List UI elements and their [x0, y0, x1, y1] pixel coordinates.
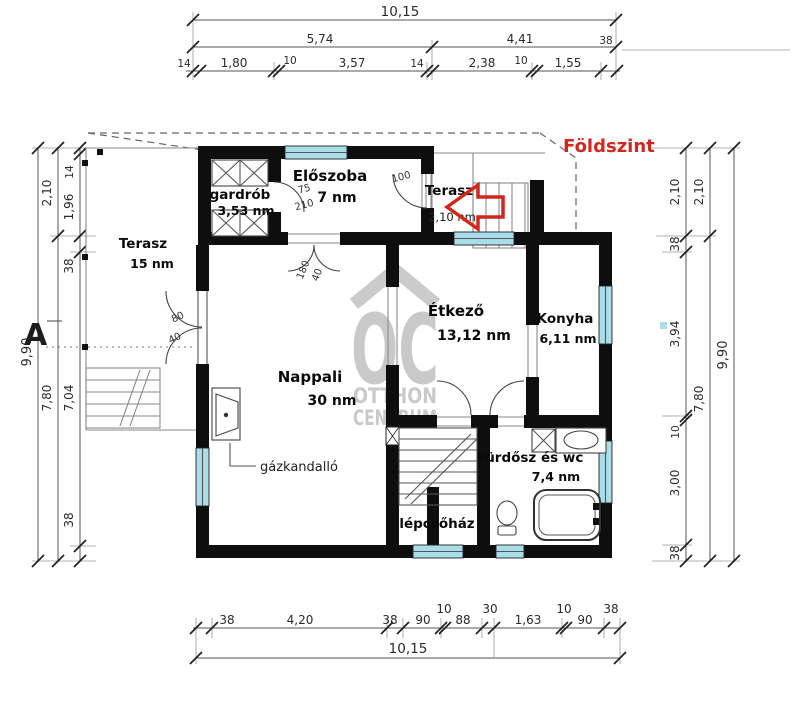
terrace-post	[82, 254, 88, 260]
room-area-konyha: 6,11 nm	[539, 331, 596, 346]
room-label-konyha: Konyha	[537, 311, 594, 327]
dim-bot-overall: 10,15	[389, 641, 428, 657]
dim-left-mid-1: 7,80	[40, 385, 54, 412]
window-icon	[599, 286, 612, 344]
entry-door-icon	[454, 232, 514, 245]
floorplan-canvas: 10,15 5,74 4,41 38 14 1,80 10 3,57 14 2,…	[0, 0, 800, 711]
dim-left-chain-0: 14	[64, 165, 76, 179]
dim-top-overall: 10,15	[381, 4, 420, 20]
bathtub-icon	[534, 490, 600, 540]
dim-bot-chain-10: 38	[603, 602, 618, 616]
dim-top-chain-0: 14	[177, 58, 191, 70]
floorplan-svg: 10,15 5,74 4,41 38 14 1,80 10 3,57 14 2,…	[0, 0, 800, 711]
door-arc-stairhall	[437, 381, 471, 415]
door-arc-bath	[490, 381, 524, 415]
dim-right-chain-2: 3,94	[668, 321, 682, 348]
section-marker-label: A	[24, 318, 48, 353]
dim-top-mid-0: 5,74	[307, 32, 334, 46]
dim-bot-chain-9: 90	[577, 613, 592, 627]
terrace-post	[97, 149, 103, 155]
room-label-eloszoba: Előszoba	[293, 167, 368, 185]
interior-staircase	[399, 428, 477, 505]
room-area-furdo: 7,4 nm	[532, 469, 580, 484]
chimney-shaft	[386, 427, 399, 445]
dim-top-chain-7: 1,55	[555, 56, 582, 70]
dim-top-chain-5: 2,38	[469, 56, 496, 70]
scan-artifact	[660, 322, 667, 329]
dim-left-chain-3: 7,04	[62, 385, 76, 412]
dim-top-chain-1: 1,80	[221, 56, 248, 70]
dim-top-chain-3: 3,57	[339, 56, 366, 70]
door-dim-40: 40	[310, 267, 325, 283]
dim-bot-chain-3: 90	[415, 613, 430, 627]
dim-right-mid-1: 7,80	[692, 386, 706, 413]
dim-bot-chain-5: 88	[455, 613, 470, 627]
room-label-gardrob: gardrób	[210, 187, 271, 203]
room-label-nappali: Nappali	[278, 368, 343, 386]
dim-right-chain-5: 38	[668, 545, 682, 560]
dim-bot-chain-0: 38	[219, 613, 234, 627]
room-label-lepcsohaz: lépcsőház	[399, 516, 474, 532]
room-area-etkezo: 13,12 nm	[437, 328, 511, 344]
dim-left-mid-0: 2,10	[40, 180, 54, 207]
door-dim-40b: 40	[167, 331, 183, 346]
dim-right-chain-1: 38	[668, 236, 682, 251]
dim-right-chain-0: 2,10	[668, 179, 682, 206]
room-label-furdo: Fürdősz és wc	[477, 450, 584, 466]
room-label-etkezo: Étkező	[428, 301, 484, 320]
door-dim-80: 80	[170, 310, 186, 325]
room-area-gardrob: 3,53 nm	[217, 203, 274, 218]
dim-bot-chain-1: 4,20	[287, 613, 314, 627]
dim-right-mid-0: 2,10	[692, 179, 706, 206]
window-icon	[285, 146, 347, 159]
room-area-eloszoba2: 7 nm	[317, 190, 356, 206]
window-icon	[196, 448, 209, 506]
dim-left-chain-1: 1,96	[62, 194, 76, 221]
shower-icon	[532, 429, 555, 452]
door-arc-terrace-upper	[166, 291, 202, 327]
floor-title: Földszint	[563, 136, 655, 157]
door-dim-210: 210	[294, 198, 315, 214]
terrace-post	[82, 160, 88, 166]
room-area-terasz-nagy: 15 nm	[130, 256, 174, 271]
door-arc-double-right	[314, 245, 340, 271]
dim-bot-chain-6: 30	[482, 602, 497, 616]
dim-bot-chain-7: 1,63	[515, 613, 542, 627]
dim-right-chain-4: 3,00	[668, 470, 682, 497]
closet-icon	[212, 160, 268, 186]
terrace-post	[82, 344, 88, 350]
dim-top-mid-1: 4,41	[507, 32, 534, 46]
dim-left-chain-4: 38	[62, 512, 76, 527]
dim-top-chain-2: 10	[283, 55, 296, 67]
dim-bot-chain-4: 10	[436, 602, 451, 616]
window-icon	[496, 545, 524, 558]
window-icon	[413, 545, 463, 558]
door-dim-100: 100	[391, 170, 412, 186]
fireplace-icon	[212, 388, 240, 440]
room-label-terasz-nagy: Terasz	[119, 236, 167, 252]
dim-bot-chain-8: 10	[556, 602, 571, 616]
dim-bot-chain-2: 38	[382, 613, 397, 627]
room-area-nappali: 30 nm	[308, 393, 357, 409]
gazkandallo-label: gázkandalló	[260, 460, 338, 475]
dim-right-chain-3: 10	[670, 425, 682, 438]
toilet-icon	[497, 501, 517, 535]
dim-left-chain-2: 38	[62, 258, 76, 273]
exterior-stairs	[86, 368, 160, 428]
dim-top-chain-4: 14	[410, 58, 424, 70]
dim-top-chain-6: 10	[514, 55, 527, 67]
room-label-terasz-bejarat: Terasz	[425, 183, 473, 199]
dim-right-overall: 9,90	[716, 341, 731, 370]
dim-top-mid-2: 38	[599, 35, 612, 47]
